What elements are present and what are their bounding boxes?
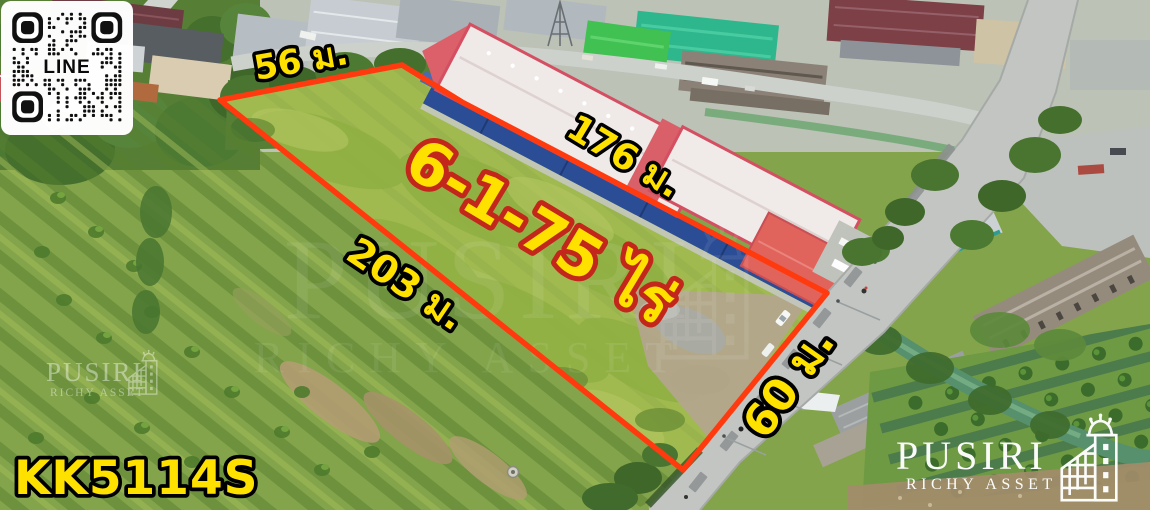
listing-code: KK5114S (14, 451, 259, 506)
brand-subtitle: RICHY ASSET (906, 476, 1057, 493)
qr-finder-bottomleft (12, 91, 43, 122)
dimension-label-road-side: 60 ม. (733, 318, 845, 447)
qr-finder-topright (91, 12, 122, 43)
brand-building-icon (1062, 414, 1117, 501)
qr-line-label: LINE (43, 57, 90, 78)
qr-finder-topleft (12, 12, 43, 43)
listing-photo: PUSIRI RICHY ASSET PUSIRI RICHY ASSET 56… (0, 0, 1150, 510)
brand-logo: PUSIRI RICHY ASSET (896, 414, 1116, 501)
line-qr-code: LINE (0, 0, 134, 136)
brand-name: PUSIRI (896, 433, 1047, 478)
watermark-center-subtitle: RICHY ASSET (254, 333, 686, 382)
dimension-label-top: 56 ม. (251, 33, 351, 89)
annotation-overlay: PUSIRI RICHY ASSET PUSIRI RICHY ASSET 56… (0, 0, 1150, 510)
dimension-label-warehouse-side: 176 ม. (560, 107, 688, 207)
watermark-left-subtitle: RICHY ASSET (50, 387, 145, 399)
watermark-left: PUSIRI RICHY ASSET (46, 350, 157, 399)
